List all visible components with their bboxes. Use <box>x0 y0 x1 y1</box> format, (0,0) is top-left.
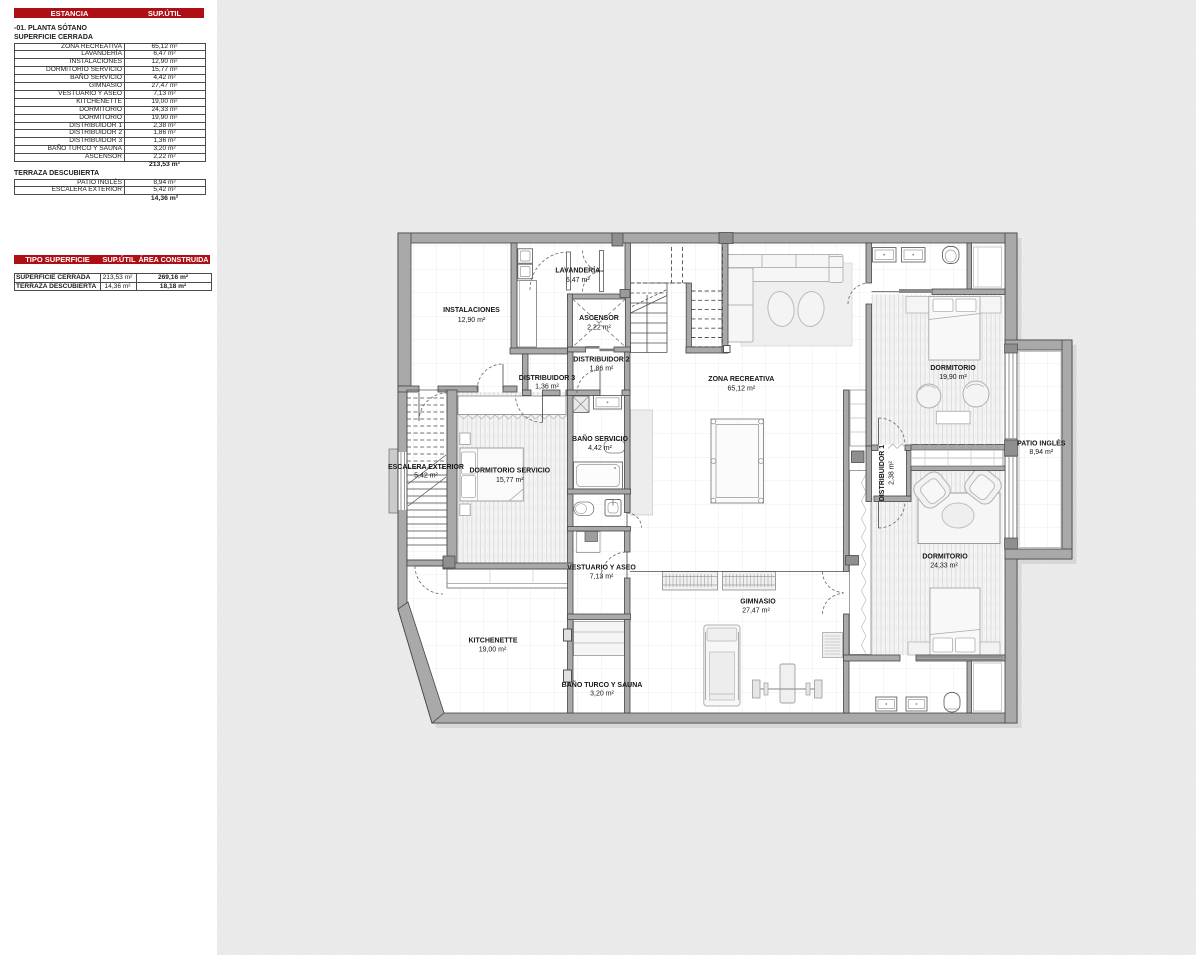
svg-text:GIMNASIO: GIMNASIO <box>740 599 776 606</box>
svg-text:12,90 m²: 12,90 m² <box>458 317 486 324</box>
svg-text:2,22 m²: 2,22 m² <box>587 325 611 332</box>
svg-text:ASCENSOR: ASCENSOR <box>579 315 619 322</box>
svg-text:BAÑO TURCO Y SAUNA: BAÑO TURCO Y SAUNA <box>562 680 643 689</box>
svg-text:19,90 m²: 19,90 m² <box>939 374 967 381</box>
svg-text:24,33 m²: 24,33 m² <box>930 563 958 570</box>
svg-text:DORMITORIO: DORMITORIO <box>922 554 968 561</box>
svg-text:ZONA RECREATIVA: ZONA RECREATIVA <box>708 376 774 383</box>
svg-text:15,77 m²: 15,77 m² <box>496 477 524 484</box>
svg-text:VESTUARIO Y ASEO: VESTUARIO Y ASEO <box>567 565 636 572</box>
svg-text:INSTALACIONES: INSTALACIONES <box>443 307 500 314</box>
svg-text:4,42 m²: 4,42 m² <box>588 445 612 452</box>
svg-text:ESCALERA EXTERIOR: ESCALERA EXTERIOR <box>388 464 464 471</box>
svg-text:2,38 m²: 2,38 m² <box>889 460 896 484</box>
svg-text:BAÑO SERVICIO: BAÑO SERVICIO <box>572 434 628 443</box>
svg-text:6,47 m²: 6,47 m² <box>566 277 590 284</box>
svg-text:27,47 m²: 27,47 m² <box>742 608 770 615</box>
svg-text:1,86 m²: 1,86 m² <box>590 366 614 373</box>
svg-text:3,20 m²: 3,20 m² <box>590 691 614 698</box>
svg-text:65,12 m²: 65,12 m² <box>727 386 755 393</box>
svg-text:8,94 m²: 8,94 m² <box>1029 449 1053 456</box>
svg-text:DISTRIBUIDOR 1: DISTRIBUIDOR 1 <box>879 445 886 502</box>
svg-text:5,42 m²: 5,42 m² <box>414 473 438 480</box>
svg-text:KITCHENETTE: KITCHENETTE <box>469 638 518 645</box>
svg-text:DISTRIBUIDOR 3: DISTRIBUIDOR 3 <box>519 375 576 382</box>
svg-text:1,36 m²: 1,36 m² <box>535 384 559 391</box>
svg-text:DORMITORIO SERVICIO: DORMITORIO SERVICIO <box>469 468 550 475</box>
svg-text:7,13 m²: 7,13 m² <box>590 574 614 581</box>
svg-text:DISTRIBUIDOR 2: DISTRIBUIDOR 2 <box>573 357 630 364</box>
svg-text:PATIO INGLÉS: PATIO INGLÉS <box>1017 439 1066 448</box>
svg-text:19,00 m²: 19,00 m² <box>479 647 507 654</box>
svg-text:LAVANDERÍA: LAVANDERÍA <box>555 266 600 275</box>
svg-text:DORMITORIO: DORMITORIO <box>930 365 976 372</box>
